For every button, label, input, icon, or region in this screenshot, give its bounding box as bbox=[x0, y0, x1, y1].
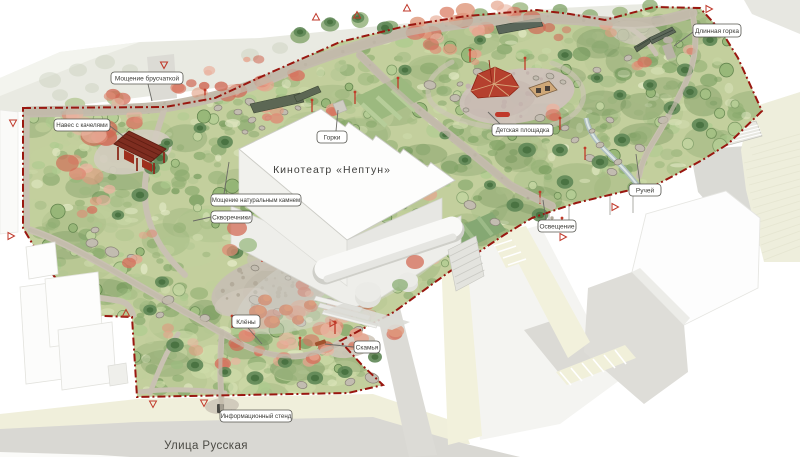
svg-text:Скамья: Скамья bbox=[356, 344, 379, 351]
svg-text:Улица Русская: Улица Русская bbox=[164, 440, 248, 452]
svg-text:Длинная горка: Длинная горка bbox=[695, 28, 739, 35]
svg-text:Скворечники: Скворечники bbox=[212, 214, 251, 221]
svg-text:Детская площадка: Детская площадка bbox=[496, 127, 550, 134]
svg-text:Информационный стенд: Информационный стенд bbox=[221, 413, 292, 420]
svg-text:Навес с качелями: Навес с качелями bbox=[56, 122, 108, 129]
svg-text:Освещение: Освещение bbox=[539, 223, 574, 230]
svg-text:Ручей: Ручей bbox=[636, 186, 655, 194]
svg-text:Кинотеатр «Нептун»: Кинотеатр «Нептун» bbox=[273, 164, 391, 176]
svg-text:Мощение натуральным камнем: Мощение натуральным камнем bbox=[212, 198, 300, 204]
svg-text:Мощение брусчаткой: Мощение брусчаткой bbox=[115, 74, 180, 82]
svg-text:Клёны: Клёны bbox=[236, 319, 256, 326]
svg-text:Горки: Горки bbox=[324, 134, 341, 141]
